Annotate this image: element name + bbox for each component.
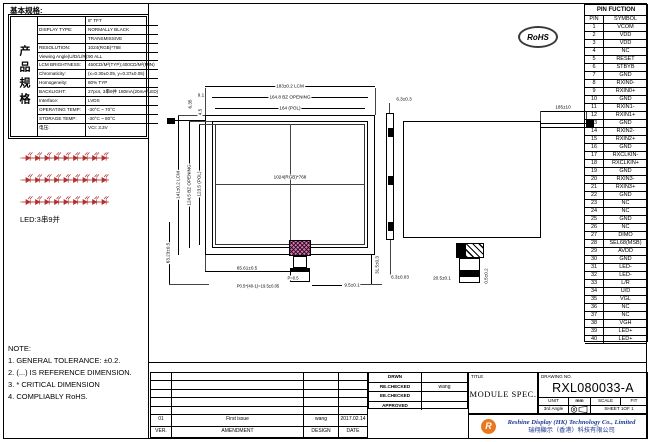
front-view-tab bbox=[167, 118, 175, 124]
pin-symbol: VDD bbox=[604, 32, 647, 39]
scale-label: SCALE bbox=[591, 398, 621, 405]
pin-number: 16 bbox=[585, 144, 604, 151]
pin-symbol: VGL bbox=[604, 296, 647, 303]
drawing-sheet: 基本规格: 产品规格 8" TFT DISPLAY TYPE: NORMALLY… bbox=[0, 0, 650, 442]
pin-number: 30 bbox=[585, 256, 604, 263]
dim-ext bbox=[540, 111, 541, 121]
approval-row: DRWN bbox=[369, 373, 467, 383]
pin-number: 3 bbox=[585, 40, 604, 47]
pin-symbol: RXCLKIN+ bbox=[604, 160, 647, 167]
revision-amendment-header: AMENDMENT bbox=[172, 427, 304, 437]
notes: NOTE: 1. GENERAL TOLERANCE: ±0.2.2. (...… bbox=[8, 343, 132, 403]
spec-row-label: OPERATING TEMP: bbox=[38, 106, 86, 114]
spec-row: LCM BRIGHTNESS: 450CD/M²(TYP);400CD/M²(M… bbox=[38, 61, 158, 70]
spec-table: 产品规格 8" TFT DISPLAY TYPE: NORMALLY BLACK… bbox=[10, 16, 147, 137]
spec-row-value: -30°C ~ 70°C bbox=[86, 106, 158, 114]
pin-symbol: STBYB bbox=[604, 64, 647, 71]
spec-row: DISPLAY TYPE: NORMALLY BLACK bbox=[38, 26, 158, 35]
unit-scale-row: UNIT mm SCALE FIT bbox=[538, 398, 648, 406]
revision-empty-row bbox=[151, 373, 367, 381]
pin-number: 33 bbox=[585, 280, 604, 287]
note-item: 4. COMPLIABLY RoHS. bbox=[8, 391, 132, 403]
pin-symbol: GND bbox=[604, 144, 647, 151]
pin-row: 8 RXIN0- bbox=[585, 80, 647, 88]
dim-thickness-bottom: 6.3±0.03 bbox=[390, 275, 410, 280]
revision-empty-row bbox=[151, 381, 367, 389]
pin-symbol: NC bbox=[604, 224, 647, 231]
spec-row: 8" TFT bbox=[38, 17, 158, 26]
spec-row-label: BACKLIGHT: bbox=[38, 88, 86, 96]
pin-symbol: NC bbox=[604, 208, 647, 215]
pin-number: 31 bbox=[585, 264, 604, 271]
pin-symbol: NC bbox=[604, 200, 647, 207]
spec-row-label: Interface: bbox=[38, 97, 86, 105]
pin-symbol: GND bbox=[604, 120, 647, 127]
pin-number: 35 bbox=[585, 296, 604, 303]
pin-number: 6 bbox=[585, 64, 604, 71]
pin-col-header: PIN bbox=[585, 16, 604, 23]
revision-ver: 01 bbox=[151, 415, 172, 425]
pin-row: 26 NC bbox=[585, 224, 647, 232]
note-item: 1. GENERAL TOLERANCE: ±0.2. bbox=[8, 355, 132, 367]
front-fpc-hatch bbox=[289, 240, 311, 256]
pin-symbol: GND bbox=[604, 72, 647, 79]
resolution-label: 1024(RGB)*768 bbox=[273, 175, 308, 180]
spec-side-label: 产品规格 bbox=[11, 17, 38, 136]
pin-number: 14 bbox=[585, 128, 604, 135]
pin-number: 39 bbox=[585, 328, 604, 335]
dim-line bbox=[371, 255, 372, 284]
pin-number: 9 bbox=[585, 88, 604, 95]
pin-row: 34 U/D bbox=[585, 288, 647, 296]
spec-row-label: LCM BRIGHTNESS: bbox=[38, 61, 86, 69]
pin-row: 36 NC bbox=[585, 304, 647, 312]
pin-number: 13 bbox=[585, 120, 604, 127]
spec-row: RESOLUTION: 1024(RGB)*768 bbox=[38, 44, 158, 53]
pin-row: 1 VCOM bbox=[585, 24, 647, 32]
pin-symbol: L/R bbox=[604, 280, 647, 287]
dim-width-lcm: 183±0.2 LCM bbox=[275, 84, 305, 89]
spec-row-value: 8" TFT bbox=[86, 17, 158, 25]
spec-row: TRANSMISSIVE bbox=[38, 35, 158, 44]
pin-row: 10 GND bbox=[585, 96, 647, 104]
pin-row: 23 NC bbox=[585, 200, 647, 208]
pin-rows: 1 VCOM 2 VDD 3 VDD 4 NC bbox=[585, 24, 647, 344]
pin-symbol: RXIN1- bbox=[604, 104, 647, 111]
title-box: TITLE MODULE SPEC. bbox=[468, 372, 538, 414]
pin-row: 12 RXIN1+ bbox=[585, 112, 647, 120]
pin-symbol: GND bbox=[604, 216, 647, 223]
scale-value: FIT bbox=[621, 398, 647, 405]
pin-number: 40 bbox=[585, 336, 604, 343]
side-profile-segment bbox=[388, 222, 393, 231]
pin-number: 5 bbox=[585, 56, 604, 63]
spec-row-label: DISPLAY TYPE: bbox=[38, 26, 86, 34]
pin-symbol: GND bbox=[604, 96, 647, 103]
pin-number: 28 bbox=[585, 240, 604, 247]
pin-symbol: SEL68(MSB) bbox=[604, 240, 647, 247]
dim-height-lcm: 141±0.2 LCM bbox=[176, 170, 181, 200]
revision-date: 2017.02.14 bbox=[339, 415, 367, 425]
pin-row: 7 GND bbox=[585, 72, 647, 80]
spec-row: BACKLIGHT: 27pcs, 3串9并 180mA(20mA/LED) bbox=[38, 88, 158, 97]
pin-number: 38 bbox=[585, 320, 604, 327]
notes-list: 1. GENERAL TOLERANCE: ±0.2.2. (...) IS R… bbox=[8, 355, 132, 403]
pin-number: 21 bbox=[585, 184, 604, 191]
pin-symbol: GND bbox=[604, 256, 647, 263]
pin-symbol: LED- bbox=[604, 272, 647, 279]
dim-ext bbox=[199, 124, 215, 125]
pin-row: 29 AVDD bbox=[585, 248, 647, 256]
company-text: Reshine Display (HK) Technology Co., Lim… bbox=[496, 419, 647, 435]
dim-width-pol: 164 (POL) bbox=[278, 106, 301, 111]
approval-row: EE.CHECKED bbox=[369, 392, 467, 402]
dim-rear-fpc-side: 0.5±0.2 bbox=[484, 267, 489, 284]
approval-role: DRWN bbox=[369, 373, 422, 382]
pin-symbol: RXIN1+ bbox=[604, 112, 647, 119]
pin-number: 11 bbox=[585, 104, 604, 111]
spec-row-value: 1024(RGB)*768 bbox=[86, 44, 158, 52]
pin-row: 38 VGH bbox=[585, 320, 647, 328]
approval-signature bbox=[422, 373, 467, 382]
title-block-divider bbox=[148, 362, 647, 363]
pin-symbol: GND bbox=[604, 168, 647, 175]
pin-symbol: LED+ bbox=[604, 328, 647, 335]
spec-row-label bbox=[38, 17, 86, 25]
company-bar: R Reshine Display (HK) Technology Co., L… bbox=[468, 414, 648, 439]
pin-symbol: LED+ bbox=[604, 336, 647, 343]
approval-role: APPROVED bbox=[369, 402, 422, 411]
backlight-wire bbox=[541, 127, 586, 128]
pin-symbol: GND bbox=[604, 192, 647, 199]
sheet-number: SHEET 1OF 1 bbox=[591, 406, 647, 413]
side-profile-segment bbox=[388, 128, 393, 137]
dim-end-margin: 9.5±0.1 bbox=[343, 283, 360, 288]
pin-row: 19 GND bbox=[585, 168, 647, 176]
pin-row: 27 DIMO bbox=[585, 232, 647, 240]
symbol-col-header: SYMBOL bbox=[604, 16, 647, 23]
spec-row-value: NORMALLY BLACK bbox=[86, 26, 158, 34]
pin-row: 35 VGL bbox=[585, 296, 647, 304]
dim-ext bbox=[390, 240, 391, 278]
spec-row-value: VCI: 3.3V bbox=[86, 124, 158, 137]
projection-angle-label: 3rd Angle bbox=[539, 406, 569, 413]
pin-row: 18 RXCLKIN+ bbox=[585, 160, 647, 168]
led-array-schematic bbox=[18, 146, 110, 212]
document-title: MODULE SPEC. bbox=[469, 389, 537, 399]
pin-number: 19 bbox=[585, 168, 604, 175]
dim-offset-left-a: 6.35 bbox=[188, 99, 193, 110]
revision-empty-row bbox=[151, 407, 367, 415]
pin-row: 39 LED+ bbox=[585, 328, 647, 336]
company-logo-icon: R bbox=[481, 419, 496, 434]
spec-row-label: RESOLUTION: bbox=[38, 44, 86, 52]
note-item: 3. * CRITICAL DIMENSION bbox=[8, 379, 132, 391]
approval-signature: wang bbox=[422, 383, 467, 392]
pin-number: 2 bbox=[585, 32, 604, 39]
spec-header: 基本规格: bbox=[10, 5, 43, 16]
spec-row: 电压: VCI: 3.3V bbox=[38, 124, 158, 137]
pin-number: 1 bbox=[585, 24, 604, 31]
pin-number: 4 bbox=[585, 48, 604, 55]
rear-fpc-black bbox=[456, 243, 465, 258]
pin-number: 7 bbox=[585, 72, 604, 79]
pin-row: 32 LED- bbox=[585, 272, 647, 280]
pin-symbol: RXIN2+ bbox=[604, 136, 647, 143]
drawing-no: RXL080033-A bbox=[539, 381, 647, 395]
spec-row-label: 电压: bbox=[38, 124, 86, 137]
pin-number: 37 bbox=[585, 312, 604, 319]
spec-row: OPERATING TEMP: -30°C ~ 70°C bbox=[38, 106, 158, 115]
pin-row: 14 RXIN2- bbox=[585, 128, 647, 136]
approval-signature bbox=[422, 402, 467, 411]
spec-row: Homogeneity: 80% TYP bbox=[38, 79, 158, 88]
pin-number: 17 bbox=[585, 152, 604, 159]
pin-row: 5 RESET bbox=[585, 56, 647, 64]
revision-empty-row bbox=[151, 398, 367, 406]
pin-symbol: RXIN2- bbox=[604, 128, 647, 135]
pin-symbol: RXIN0- bbox=[604, 80, 647, 87]
spec-row-value: 80% TYP bbox=[86, 79, 158, 87]
dim-wire-length: 185±10 bbox=[554, 105, 571, 110]
pin-number: 10 bbox=[585, 96, 604, 103]
spec-row-label: STORAGE TEMP: bbox=[38, 115, 86, 123]
led-array-label: LED:3串9并 bbox=[20, 214, 60, 225]
spec-row-value: LVDS bbox=[86, 97, 158, 105]
pin-symbol: RXIN3- bbox=[604, 176, 647, 183]
pin-number: 23 bbox=[585, 200, 604, 207]
rear-fpc-hatch bbox=[465, 243, 484, 258]
pin-row: 15 RXIN2+ bbox=[585, 136, 647, 144]
pin-row: 11 RXIN1- bbox=[585, 104, 647, 112]
pin-symbol: VGH bbox=[604, 320, 647, 327]
pin-symbol: NC bbox=[604, 48, 647, 55]
spec-row: Interface: LVDS bbox=[38, 97, 158, 106]
dim-ext bbox=[169, 284, 209, 285]
pin-symbol: AVDD bbox=[604, 248, 647, 255]
projection-sheet-row: 3rd Angle SHEET 1OF 1 bbox=[538, 406, 648, 414]
spec-row: Viewing Angle(U/D/L/R): 90 ALL bbox=[38, 53, 158, 62]
pin-row: 20 RXIN3- bbox=[585, 176, 647, 184]
pin-row: 9 RXIN0+ bbox=[585, 88, 647, 96]
company-name-en: Reshine Display (HK) Technology Co., Lim… bbox=[496, 419, 647, 427]
pin-number: 22 bbox=[585, 192, 604, 199]
pin-symbol: RESET bbox=[604, 56, 647, 63]
pin-row: 24 NC bbox=[585, 208, 647, 216]
dim-rear-fpc-width: 20.5±0.1 bbox=[432, 276, 452, 281]
title-label: TITLE bbox=[471, 374, 483, 379]
pin-number: 25 bbox=[585, 216, 604, 223]
dim-line bbox=[312, 285, 342, 286]
pin-row: 25 GND bbox=[585, 216, 647, 224]
pin-number: 8 bbox=[585, 80, 604, 87]
approval-row: APPROVED bbox=[369, 402, 467, 411]
spec-row-value: (x=0.30±0.05, y=0.37±0.05) bbox=[86, 70, 158, 78]
spec-row: STORAGE TEMP: -30°C ~ 80°C bbox=[38, 115, 158, 124]
dim-ext bbox=[375, 88, 376, 115]
dim-width-bz: 164.8 BZ OPENING bbox=[268, 95, 311, 100]
dim-thickness-top: 6.3±0.3 bbox=[395, 97, 412, 102]
spec-row-value: 27pcs, 3串9并 180mA(20mA/LED) bbox=[86, 88, 158, 96]
pin-row: 6 STBYB bbox=[585, 64, 647, 72]
pin-row: 2 VDD bbox=[585, 32, 647, 40]
approval-role: RE.CHECKED bbox=[369, 383, 422, 392]
pin-row: 4 NC bbox=[585, 48, 647, 56]
dim-line bbox=[205, 271, 290, 272]
pin-number: 12 bbox=[585, 112, 604, 119]
rear-fpc-stem bbox=[459, 258, 480, 271]
approval-role: EE.CHECKED bbox=[369, 392, 422, 401]
rohs-stamp: RoHS bbox=[518, 26, 558, 48]
pin-number: 20 bbox=[585, 176, 604, 183]
pin-symbol: LED- bbox=[604, 264, 647, 271]
pin-symbol: NC bbox=[604, 304, 647, 311]
unit-value: mm bbox=[569, 398, 591, 405]
rear-fpc-end bbox=[459, 276, 480, 283]
pin-row: 31 LED- bbox=[585, 264, 647, 272]
front-fpc-stem bbox=[293, 256, 307, 268]
pin-symbol: U/D bbox=[604, 288, 647, 295]
dim-height-bz: 124.5 BZ OPENING bbox=[187, 163, 192, 206]
approval-signature bbox=[422, 392, 467, 401]
dim-fpc-drop: 31.5±0.3 bbox=[375, 255, 380, 275]
pin-symbol: RXIN0+ bbox=[604, 88, 647, 95]
approval-row: RE.CHECKED wang bbox=[369, 383, 467, 393]
pin-row: 13 GND bbox=[585, 120, 647, 128]
pin-table: PIN FUCTION PIN SYMBOL 1 VCOM 2 VDD 3 VD… bbox=[584, 4, 648, 342]
revision-header-row: VER. AMENDMENT DESIGN DATE bbox=[151, 427, 367, 437]
pin-number: 27 bbox=[585, 232, 604, 239]
front-connector-bar bbox=[290, 268, 310, 272]
backlight-wire bbox=[541, 123, 586, 124]
dim-pitch: P=0.5 bbox=[286, 276, 299, 281]
spec-row-label bbox=[38, 35, 86, 43]
pin-number: 36 bbox=[585, 304, 604, 311]
dim-ext bbox=[389, 103, 390, 113]
spec-row-value: 90 ALL bbox=[86, 53, 158, 61]
dim-fpc-y: 63.23±0.5 bbox=[166, 242, 171, 264]
dim-line bbox=[540, 111, 586, 112]
third-angle-projection-icon bbox=[569, 406, 591, 413]
drawing-no-label: DRAWING NO. bbox=[541, 374, 572, 379]
pin-symbol: NC bbox=[604, 312, 647, 319]
notes-title: NOTE: bbox=[8, 343, 132, 355]
pin-number: 24 bbox=[585, 208, 604, 215]
dim-ext bbox=[189, 121, 212, 122]
pin-row: 21 RXIN3+ bbox=[585, 184, 647, 192]
pin-symbol: VCOM bbox=[604, 24, 647, 31]
pin-symbol: RXIN3+ bbox=[604, 184, 647, 191]
pin-symbol: DIMO bbox=[604, 232, 647, 239]
pin-row: 28 SEL68(MSB) bbox=[585, 240, 647, 248]
drawing-no-box: DRAWING NO. RXL080033-A bbox=[538, 372, 648, 398]
spec-rows: 8" TFT DISPLAY TYPE: NORMALLY BLACK TRAN… bbox=[38, 17, 158, 136]
pin-table-header: PIN SYMBOL bbox=[585, 16, 647, 24]
spec-row-label: Chromaticity: bbox=[38, 70, 86, 78]
pin-row: 17 RXCLKIN- bbox=[585, 152, 647, 160]
pin-row: 22 GND bbox=[585, 192, 647, 200]
note-item: 2. (...) IS REFERENCE DIMENSION. bbox=[8, 367, 132, 379]
pin-number: 34 bbox=[585, 288, 604, 295]
pin-row: 3 VDD bbox=[585, 40, 647, 48]
dim-fpc-x: 65.61±0.5 bbox=[236, 266, 258, 271]
pin-number: 29 bbox=[585, 248, 604, 255]
spec-row-value: -30°C ~ 80°C bbox=[86, 115, 158, 123]
pin-row: 30 GND bbox=[585, 256, 647, 264]
spec-row-value: TRANSMISSIVE bbox=[86, 35, 158, 43]
pin-number: 26 bbox=[585, 224, 604, 231]
company-name-cn: 瑞翔顯示（香港）科技有限公司 bbox=[496, 427, 647, 435]
pin-number: 32 bbox=[585, 272, 604, 279]
pin-number: 18 bbox=[585, 160, 604, 167]
revision-date-header: DATE bbox=[339, 427, 367, 437]
approval-table: DRWN RE.CHECKED wang EE.CHECKED APPROVED bbox=[368, 372, 468, 409]
spec-row-label: Homogeneity: bbox=[38, 79, 86, 87]
pin-table-title: PIN FUCTION bbox=[585, 5, 647, 16]
pin-row: 40 LED+ bbox=[585, 336, 647, 344]
dim-offset-left-b: 4.5 bbox=[198, 108, 203, 116]
pin-row: 16 GND bbox=[585, 144, 647, 152]
spec-row-value: 450CD/M²(TYP);400CD/M²(MIN) bbox=[86, 61, 158, 69]
front-view-centerline-h bbox=[215, 184, 365, 185]
revision-empty-row bbox=[151, 390, 367, 398]
dim-offset-top: 9.1 bbox=[197, 93, 205, 98]
dim-pitch-total: P0.5*(40-1)=19.5±0.05 bbox=[236, 284, 280, 289]
revision-entry-row: 01 First issue wang 2017.02.14 bbox=[151, 415, 367, 426]
pin-symbol: RXCLKIN- bbox=[604, 152, 647, 159]
pin-row: 33 L/R bbox=[585, 280, 647, 288]
pin-row: 37 NC bbox=[585, 312, 647, 320]
spec-row-label: Viewing Angle(U/D/L/R): bbox=[38, 53, 86, 61]
pin-number: 15 bbox=[585, 136, 604, 143]
dim-height-pol: 123.5 (POL) bbox=[197, 170, 202, 197]
revision-amendment: First issue bbox=[172, 415, 304, 425]
side-profile-segment bbox=[388, 176, 393, 185]
spec-row: Chromaticity: (x=0.30±0.05, y=0.37±0.05) bbox=[38, 70, 158, 79]
pin-symbol: VDD bbox=[604, 40, 647, 47]
revision-ver-header: VER. bbox=[151, 427, 172, 437]
revision-design-header: DESIGN bbox=[304, 427, 339, 437]
rear-view-outline bbox=[403, 121, 541, 238]
dim-ext bbox=[205, 255, 206, 271]
unit-label: UNIT bbox=[539, 398, 569, 405]
revision-design: wang bbox=[304, 415, 339, 425]
revision-table: 01 First issue wang 2017.02.14 VER. AMEN… bbox=[150, 372, 368, 438]
